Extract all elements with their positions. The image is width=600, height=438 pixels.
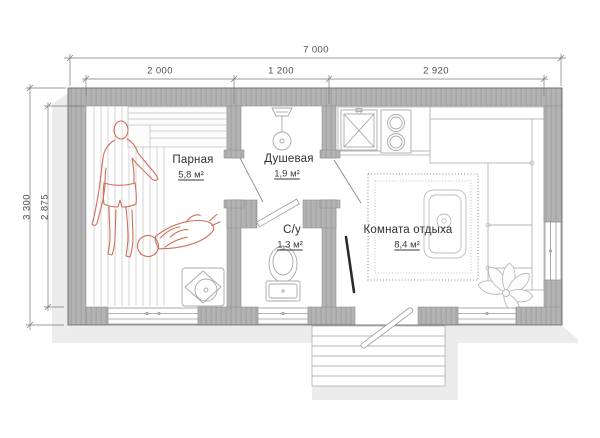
dim-segment-dushevaya: 1 200 bbox=[268, 66, 294, 77]
kitchen-sink-icon bbox=[341, 109, 377, 151]
dim-total-depth: 3 300 bbox=[22, 194, 33, 220]
window-lounge bbox=[458, 308, 516, 324]
dim-interior-depth: 2 875 bbox=[40, 194, 51, 220]
toilet-icon bbox=[266, 246, 300, 301]
lying-person-figure bbox=[133, 209, 224, 260]
dim-segment-komnata: 2 920 bbox=[423, 66, 449, 77]
door-wc-leaf bbox=[257, 199, 300, 227]
room-area-parnaya: 5,8 м² bbox=[178, 170, 204, 181]
room-area-komnata: 8,4 м² bbox=[394, 240, 420, 251]
room-area-dushevaya: 1,9 м² bbox=[274, 169, 300, 180]
dim-total-width: 7 000 bbox=[303, 45, 329, 56]
window-wc bbox=[258, 308, 308, 324]
door-lounge-swing bbox=[334, 160, 361, 203]
door-entrance-open-leaf bbox=[346, 237, 354, 292]
door-sauna-swing bbox=[240, 158, 263, 202]
sauna-bench bbox=[128, 107, 227, 147]
room-label-komnata: Комната отдыха bbox=[363, 224, 452, 236]
floor-plan: 7 000 2 000 1 200 2 920 3 300 2 875 Парн… bbox=[0, 0, 600, 438]
room-label-su: С/у bbox=[283, 224, 301, 236]
shower-head-icon bbox=[272, 108, 292, 150]
sauna-heater-icon bbox=[182, 268, 224, 306]
window-sauna bbox=[108, 308, 198, 324]
cooktop-icon bbox=[381, 110, 411, 153]
dim-segment-parnaya: 2 000 bbox=[147, 66, 173, 77]
room-area-su: 1,3 м² bbox=[277, 240, 303, 251]
room-label-parnaya: Парная bbox=[172, 154, 213, 166]
floor-plan-drawing bbox=[0, 0, 600, 438]
window-right bbox=[545, 222, 561, 280]
room-label-dushevaya: Душевая bbox=[264, 153, 313, 165]
